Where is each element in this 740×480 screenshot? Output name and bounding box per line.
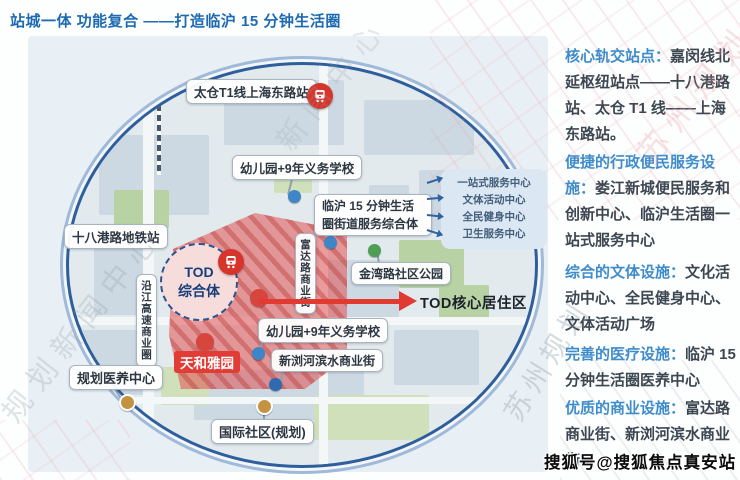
poi-dot-service-hub: [324, 236, 337, 249]
label-shibagang-station: 十八港路地铁站: [64, 224, 168, 249]
panel-item-transit: 核心轨交站点：嘉闵线北延枢纽站点——十八港路站、太仓 T1 线——上海东路站。: [565, 44, 737, 148]
label-medical-center: 规划医养中心: [69, 365, 163, 390]
label-jinwan-park: 金湾路社区公园: [351, 262, 451, 285]
poi-dot-waterfront: [269, 378, 282, 391]
label-taicang-t1-station: 太仓T1线上海东路站: [186, 79, 317, 104]
label-intl-community: 国际社区(规划): [211, 419, 314, 444]
label-yanjiang-strip: 沿江高速商业圈: [136, 274, 157, 367]
label-xinliu-street: 新浏河滨水商业街: [271, 349, 383, 372]
panel-item-medical: 完善的医疗设施：临沪 15 分钟生活圈医养中心: [565, 342, 737, 394]
service-item: 全民健身中心: [441, 209, 547, 226]
poi-dot-park: [368, 244, 381, 257]
railway: [157, 65, 161, 175]
label-school-bottom: 幼儿园+9年义务学校: [258, 318, 388, 343]
poi-dot-red: [196, 333, 214, 351]
poi-dot-red: [250, 289, 268, 307]
label-service-hub: 临沪 15 分钟生活 圈街道服务综合体: [314, 194, 432, 236]
page-title: 站城一体 功能复合 ——打造临沪 15 分钟生活圈: [10, 10, 341, 31]
train-icon: [312, 88, 328, 104]
city-block: [394, 330, 479, 385]
panel-heading: 优质的商业设施：: [565, 400, 685, 417]
core-area-arrow: [259, 299, 401, 304]
panel-heading: 核心轨交站点：: [565, 48, 670, 65]
poi-dot-school-top: [288, 190, 301, 203]
label-tianhe-estate: 天和雅园: [174, 351, 240, 373]
tod-label-line1: TOD: [184, 263, 213, 282]
road: [69, 397, 535, 404]
slide: 站城一体 功能复合 ——打造临沪 15 分钟生活圈 TOD 综合体: [0, 0, 740, 480]
label-school-top: 幼儿园+9年义务学校: [232, 155, 362, 180]
services-callout-box: 一站式服务中心 文体活动中心 全民健身中心 卫生服务中心: [441, 169, 547, 249]
service-item: 文体活动中心: [441, 192, 547, 209]
core-area-arrowhead-icon: [399, 291, 417, 311]
poi-dot-intl: [256, 398, 273, 415]
service-item: 一站式服务中心: [441, 175, 547, 192]
sohu-watermark: 搜狐号@搜狐焦点真安站: [544, 449, 736, 473]
panel-heading: 完善的医疗设施：: [565, 346, 685, 363]
park-area: [114, 190, 169, 228]
metro-station-icon: [307, 83, 333, 109]
label-core-residential: TOD核心居住区: [420, 292, 527, 313]
panel-heading: 综合的文体设施：: [565, 264, 685, 281]
panel-item-civic: 便捷的行政便民服务设施：娄江新城便民服务和创新中心、临沪生活圈一站式服务中心: [565, 150, 737, 254]
city-block: [364, 100, 474, 155]
poi-dot-school-bottom: [252, 347, 265, 360]
road: [143, 65, 154, 465]
tod-label-line2: 综合体: [178, 282, 220, 301]
metro-station-icon: [218, 249, 244, 275]
service-item: 卫生服务中心: [441, 226, 547, 243]
train-icon: [223, 254, 239, 270]
service-hub-line1: 临沪 15 分钟生活: [322, 199, 414, 213]
poi-dot-medical: [119, 394, 136, 411]
panel-item-culture: 综合的文体设施：文化活动中心、全民健身中心、文体活动广场: [565, 260, 737, 338]
service-hub-line2: 圈街道服务综合体: [322, 217, 418, 231]
